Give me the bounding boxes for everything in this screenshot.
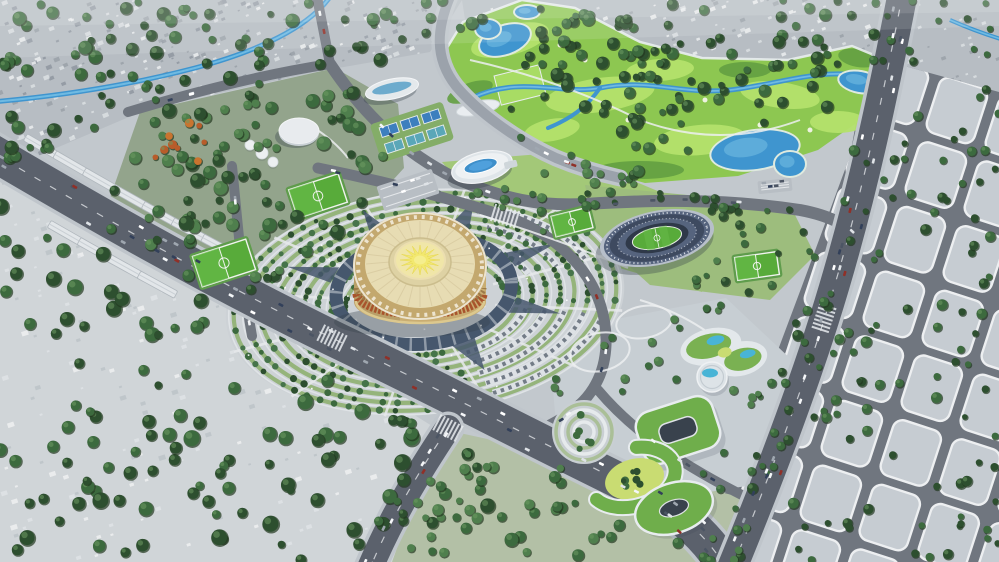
amphitheater-garden [552, 400, 616, 464]
aerial-city-render [0, 0, 999, 562]
masterplan-svg [0, 0, 999, 562]
